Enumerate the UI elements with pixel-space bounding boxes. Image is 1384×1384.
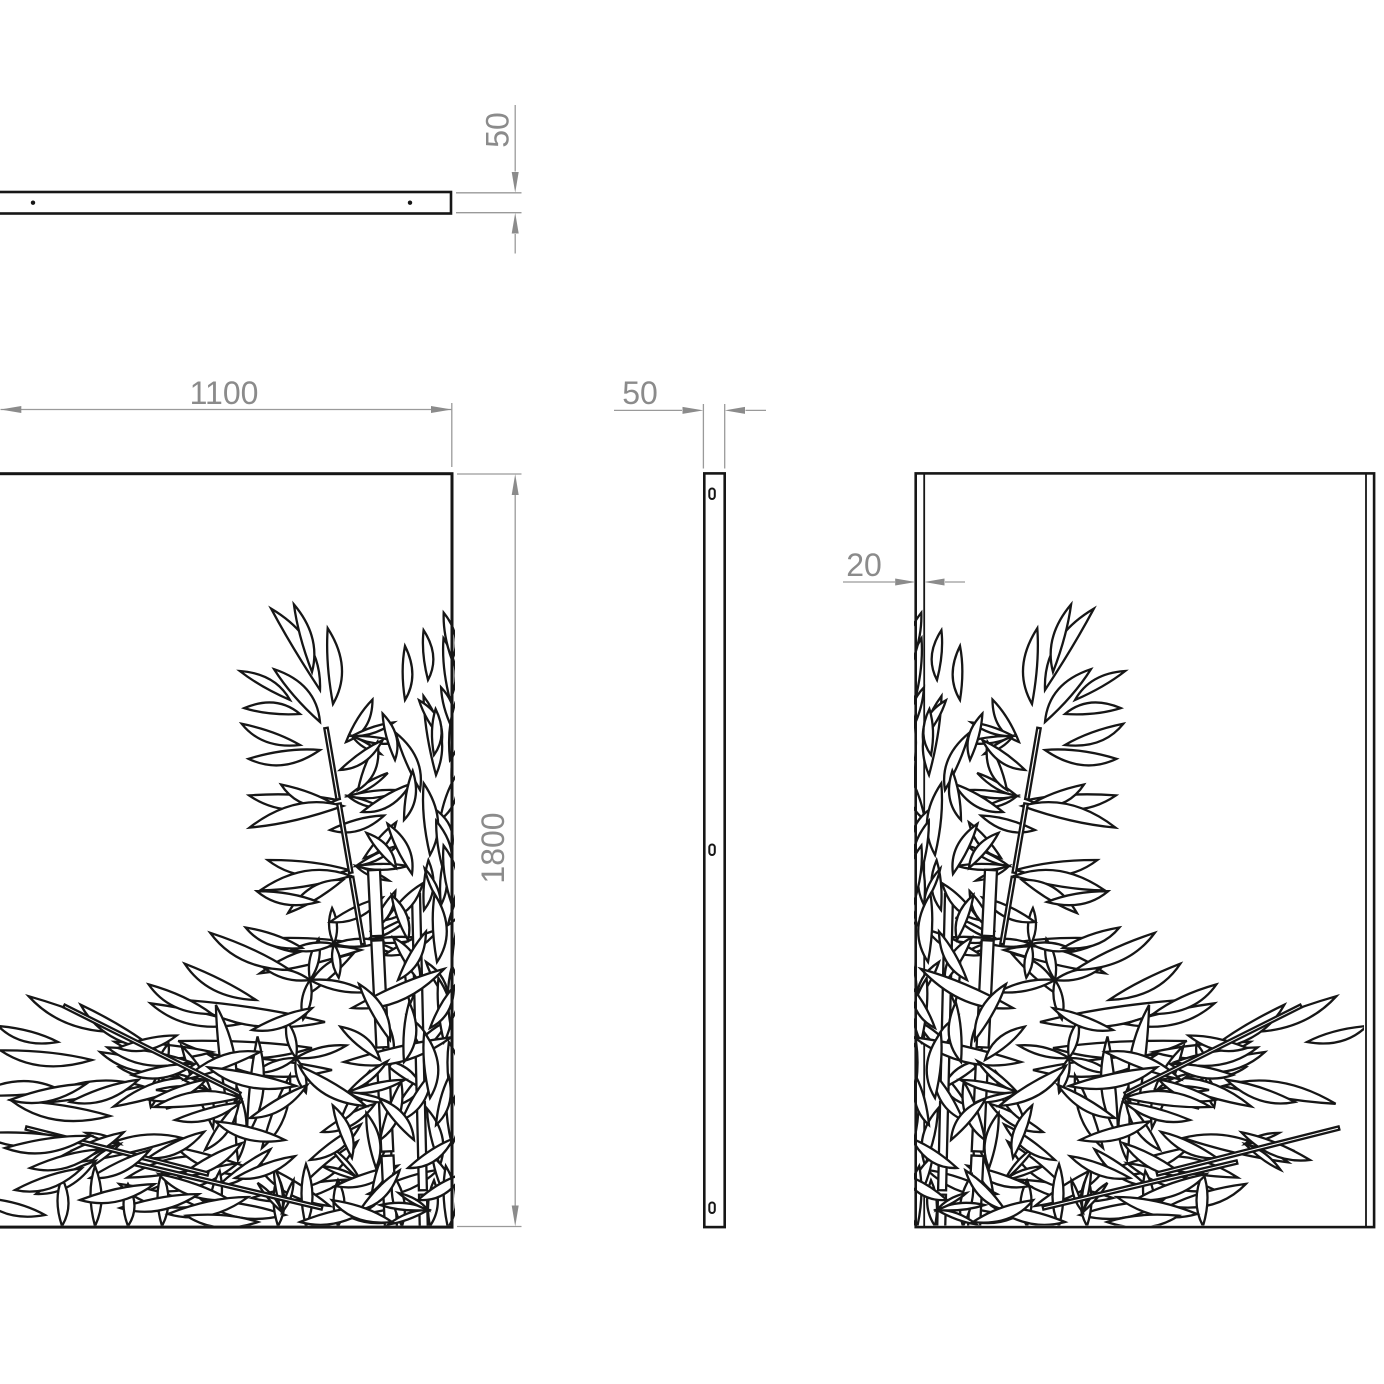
svg-text:1800: 1800	[475, 812, 511, 883]
svg-text:1100: 1100	[190, 375, 259, 411]
svg-text:50: 50	[622, 375, 658, 411]
svg-text:50: 50	[480, 112, 516, 148]
svg-text:20: 20	[846, 547, 882, 583]
